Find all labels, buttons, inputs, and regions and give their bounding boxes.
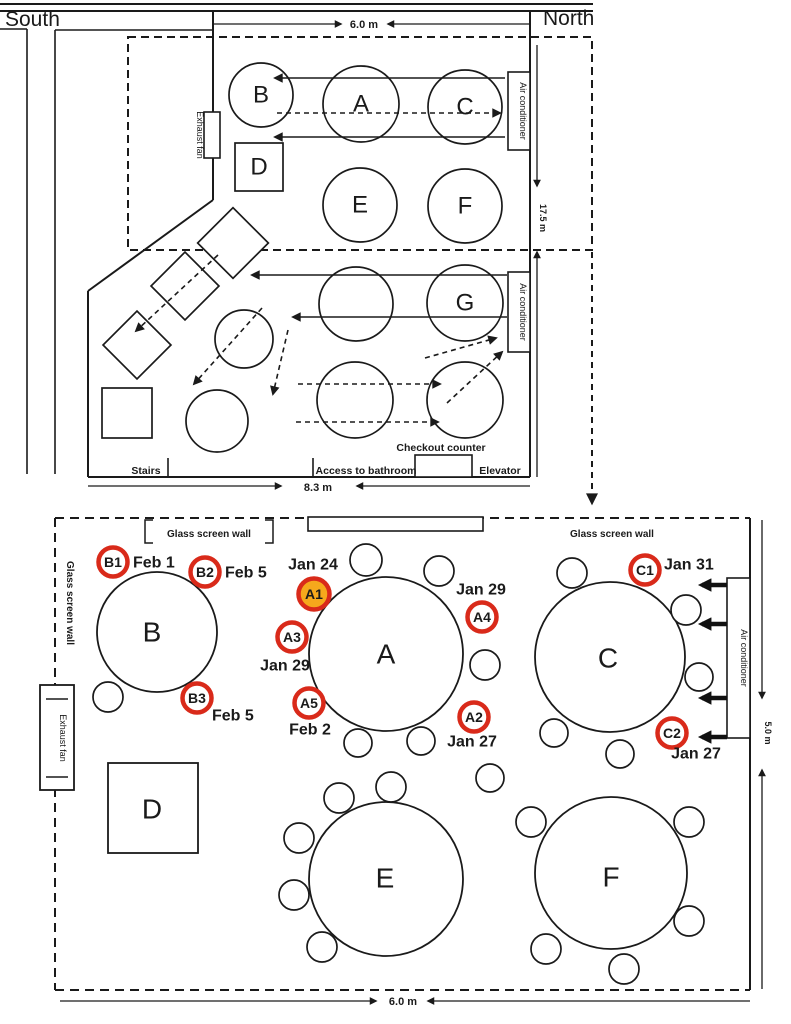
chair (671, 595, 701, 625)
chair (476, 764, 504, 792)
bathroom-access-label: Access to bathroom (316, 465, 417, 477)
ac-jet-arrows (702, 585, 727, 737)
chair (284, 823, 314, 853)
dim-detail-width-label: 6.0 m (389, 996, 417, 1008)
patient-a4-date: Jan 29 (456, 582, 506, 599)
chair (557, 558, 587, 588)
chair (540, 719, 568, 747)
checkout-counter-label: Checkout counter (396, 442, 485, 454)
round-table (215, 310, 273, 368)
exhaust-fan-label: Exhaust fan (195, 111, 205, 159)
chair (674, 906, 704, 936)
chair (674, 807, 704, 837)
exhaust-fan-overview (204, 112, 220, 158)
patient-c1-date: Jan 31 (664, 557, 714, 574)
patient-a1-date: Jan 24 (288, 557, 338, 574)
patient-c2-date: Jan 27 (671, 746, 721, 763)
detail-tables (97, 572, 687, 956)
patient-b3-date: Feb 5 (212, 708, 254, 725)
chair (685, 663, 713, 691)
chair (350, 544, 382, 576)
chair (606, 740, 634, 768)
overview-table-c-label: C (456, 94, 473, 121)
detail-table-a-label: A (377, 639, 396, 670)
round-table (427, 362, 503, 438)
air-conditioner-label: Air conditioner (518, 283, 528, 341)
overview-table-e-label: E (352, 192, 368, 219)
overview-table-d-label: D (250, 154, 267, 181)
air-conditioner-label: Air conditioner (518, 82, 528, 140)
exhaust-fan-detail-label: Exhaust fan (58, 714, 68, 762)
patient-b1-date: Feb 1 (133, 555, 175, 572)
detail-table-f-label: F (602, 862, 619, 893)
airflow-arrow-dashed (273, 330, 288, 394)
stairs-label: Stairs (131, 465, 160, 477)
overview-table-a-label: A (353, 91, 369, 118)
restaurant-floorplan-figure: South North 6.0 m 17.5 m 8.3 m Exhaust f… (0, 0, 791, 1024)
dim-right-label: 17.5 m (538, 204, 548, 232)
compass-south-label: South (5, 8, 60, 31)
compass-north-label: North (543, 7, 594, 30)
patient-a5-date: Feb 2 (289, 722, 331, 739)
overview-table-b-label: B (253, 82, 269, 109)
chair (344, 729, 372, 757)
chair (424, 556, 454, 586)
patient-b2-date: Feb 5 (225, 565, 267, 582)
overview-floorplan (0, 4, 593, 503)
patient-a1-id: A1 (305, 586, 323, 602)
chair (470, 650, 500, 680)
glass-wall-top-right-label: Glass screen wall (570, 529, 654, 540)
square-table (102, 388, 152, 438)
patient-a5-id: A5 (300, 695, 318, 711)
patient-c2-id: C2 (663, 725, 681, 741)
chair (93, 682, 123, 712)
patient-a3-date: Jan 29 (260, 658, 310, 675)
round-table (317, 362, 393, 438)
overview-table-f-label: F (458, 193, 473, 220)
checkout-counter-box (415, 455, 472, 477)
sideboard-table (308, 517, 483, 531)
glass-wall-left-label: Glass screen wall (64, 561, 75, 645)
chair (279, 880, 309, 910)
chair (531, 934, 561, 964)
dim-top-label: 6.0 m (350, 19, 378, 31)
detail-table-d-label: D (142, 794, 162, 825)
round-table (186, 390, 248, 452)
patient-a2-date: Jan 27 (447, 734, 497, 751)
patient-a2-id: A2 (465, 709, 483, 725)
chair (324, 783, 354, 813)
chair (407, 727, 435, 755)
patient-c1-id: C1 (636, 562, 654, 578)
patient-a4-id: A4 (473, 609, 491, 625)
patient-b3-id: B3 (188, 690, 206, 706)
detail-floorplan (40, 517, 762, 1001)
dim-bottom-label: 8.3 m (304, 482, 332, 494)
detail-table-c-label: C (598, 643, 618, 674)
chair (376, 772, 406, 802)
air-conditioner-detail-label: Air conditioner (739, 629, 749, 687)
patient-b2-id: B2 (196, 564, 214, 580)
overview-tables (102, 63, 503, 452)
chair (307, 932, 337, 962)
glass-wall-top-left-label: Glass screen wall (167, 529, 251, 540)
patient-b1-id: B1 (104, 554, 122, 570)
overview-table-g-label: G (456, 290, 475, 317)
patient-a3-id: A3 (283, 629, 301, 645)
detail-table-e-label: E (376, 863, 395, 894)
round-table (319, 267, 393, 341)
detail-table-b-label: B (143, 617, 162, 648)
chair (516, 807, 546, 837)
chair (609, 954, 639, 984)
elevator-label: Elevator (479, 465, 520, 477)
dim-detail-height-label: 5.0 m (763, 721, 773, 744)
